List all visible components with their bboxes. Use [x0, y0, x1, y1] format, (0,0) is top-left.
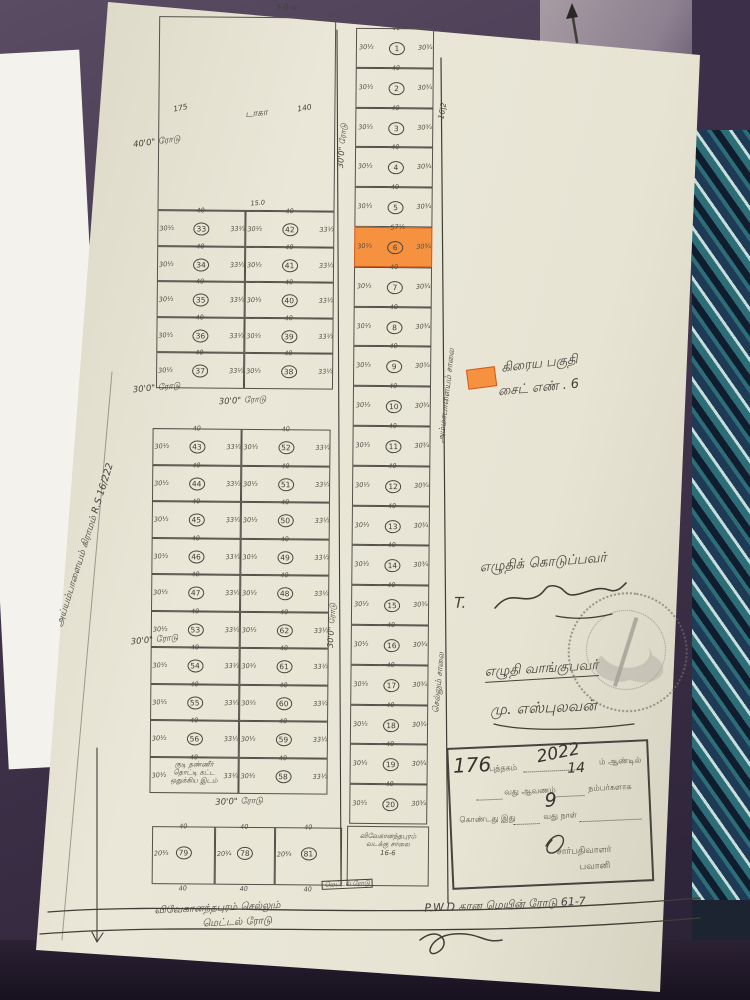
- dimension-label: 30½: [356, 362, 371, 369]
- legend-swatch: [466, 366, 497, 390]
- annotation-label: 30'0" ரோடு: [336, 123, 349, 168]
- dimension-label: 40: [278, 718, 287, 725]
- dimension-label: 30½: [359, 43, 374, 50]
- plot-number: 79: [175, 846, 191, 859]
- plot-number: 52: [278, 441, 294, 454]
- dimension-label: 40: [386, 701, 395, 708]
- dimension-label: 30½: [356, 322, 371, 329]
- plot-number: 36: [192, 329, 208, 342]
- dimension-label: 33½: [319, 297, 334, 304]
- annotation-label: அம்மாபாளையம் சாலை: [438, 348, 458, 444]
- dimension-label: 33½: [225, 553, 240, 560]
- dimension-label: 30¾: [415, 323, 430, 330]
- plot-number: 51: [278, 478, 294, 491]
- dimension-label: 40: [192, 462, 201, 469]
- dimension-label: 30½: [158, 332, 173, 339]
- dimension-label: 40: [389, 304, 398, 311]
- dimension-label: 30½: [243, 443, 258, 450]
- dimension-label: 30½: [354, 561, 369, 568]
- dimension-label: 40: [284, 350, 293, 357]
- dimension-label: 40: [386, 662, 395, 669]
- dimension-label: 40: [285, 208, 294, 215]
- plot-number: 2: [389, 82, 405, 95]
- dimension-label: 30¾: [412, 681, 427, 688]
- numbers-label: நம்பர்களாக: [588, 782, 632, 794]
- dimension-label: 40: [280, 499, 289, 506]
- dimension-label: 30½: [246, 332, 261, 339]
- dimension-label: 30¾: [411, 800, 426, 807]
- dimension-label: 30½: [357, 282, 372, 289]
- dimension-label: 30½: [153, 552, 168, 559]
- plot-number: 3: [388, 122, 404, 135]
- dimension-label: 40: [189, 717, 198, 724]
- dimension-label: 40: [389, 383, 398, 390]
- dimension-label: 30½: [355, 441, 370, 448]
- dimension-label: 40: [392, 25, 401, 32]
- plot-number: 39: [281, 330, 297, 343]
- dimension-label: 30½: [353, 720, 368, 727]
- dimension-label: 33½: [224, 699, 239, 706]
- annotation-label: 30'0" ரோடு: [219, 395, 267, 408]
- dimension-label: 40: [192, 425, 201, 432]
- dimension-label: 30½: [352, 800, 367, 807]
- dimension-label: 30½: [357, 203, 372, 210]
- grantor-initial: T.: [454, 595, 466, 612]
- plot-number: 78: [237, 847, 253, 860]
- plot-number: 49: [277, 551, 293, 564]
- plot-number: 56: [186, 732, 202, 745]
- dimension-label: 30½: [247, 297, 262, 304]
- dimension-label: 33½: [224, 662, 239, 669]
- annotation-label: 15.0: [250, 199, 265, 208]
- plot-number: 33: [193, 222, 209, 235]
- dimension-label: 40: [280, 572, 289, 579]
- plot-number: 34: [193, 258, 209, 271]
- dimension-label: 40: [389, 343, 398, 350]
- dimension-label: 30¾: [414, 482, 429, 489]
- plot-number: 61: [276, 660, 292, 673]
- day-value: 9: [544, 789, 557, 812]
- year-suffix: ம் ஆண்டில்: [599, 756, 642, 768]
- dimension-label: 30½: [159, 260, 174, 267]
- dimension-label: 33½: [318, 369, 333, 376]
- dimension-label: 30¾: [415, 402, 430, 409]
- dimension-label: 40: [190, 644, 199, 651]
- annotation-label: டாகா: [245, 108, 268, 120]
- legend-line2: சைட் எண் . 6: [497, 378, 579, 401]
- grantee-name: மு. எஸ்புலவன்: [490, 697, 597, 719]
- dimension-label: 33½: [314, 590, 329, 597]
- officer-label: சார்பதிவாளர்: [557, 845, 612, 858]
- doc-number: 176: [453, 752, 492, 778]
- dimension-label: 30½: [358, 83, 373, 90]
- dimension-label: 40: [178, 885, 187, 892]
- plot-number: 81: [300, 847, 316, 860]
- dimension-label: 30¾: [414, 442, 429, 449]
- dimension-label: 30½: [240, 772, 255, 779]
- corner-text-lines: விவேகானந்தபுரம்வடக்கு சாலை16-6: [347, 832, 429, 858]
- plot-number: 16: [384, 639, 400, 652]
- dimension-label: 40: [392, 65, 401, 72]
- dimension-label: 30½: [355, 521, 370, 528]
- plot-number: 41: [281, 259, 297, 272]
- dimension-label: 40: [280, 535, 289, 542]
- plot-number: 18: [383, 719, 399, 732]
- annotation-label: அய்யம்பாளையம் கிராமம் R.S 16/222: [55, 462, 117, 628]
- dimension-label: 33½: [315, 444, 330, 451]
- dimension-label: 40: [279, 681, 288, 688]
- dimension-label: 30½: [159, 296, 174, 303]
- plot-number: 13: [385, 520, 401, 533]
- dimension-label: 40: [281, 462, 290, 469]
- dimension-label: 20¾: [154, 850, 169, 857]
- plot-number: 59: [275, 733, 291, 746]
- dimension-label: 30½: [152, 662, 167, 669]
- dimension-label: 40: [385, 781, 394, 788]
- dimension-label: 33½: [230, 261, 245, 268]
- dimension-label: 40: [390, 264, 399, 271]
- dimension-label: 30½: [241, 735, 256, 742]
- plot-number: 11: [385, 440, 401, 453]
- dimension-label: 30½: [241, 662, 256, 669]
- dimension-label: 40: [387, 542, 396, 549]
- annotation-label: 16|2: [437, 102, 449, 120]
- plot-number: 40: [281, 294, 297, 307]
- dimension-label: 30½: [154, 479, 169, 486]
- dimension-label: 40: [279, 608, 288, 615]
- dimension-label: 40: [391, 105, 400, 112]
- dimension-label: 30½: [158, 367, 173, 374]
- dimension-label: 40: [388, 463, 397, 470]
- dimension-label: 30½: [242, 626, 257, 633]
- dimension-label: 33½: [230, 225, 245, 232]
- plot-number: 60: [276, 697, 292, 710]
- dimension-label: 40: [284, 279, 293, 286]
- dimension-label: 30½: [353, 760, 368, 767]
- dimension-label: 33½: [319, 226, 334, 233]
- dimension-label: 40: [391, 184, 400, 191]
- dimension-label: 40: [386, 741, 395, 748]
- plot-number: 53: [187, 623, 203, 636]
- photo-of-survey-document: கிரைய பகுதி சைட் எண் . 6 எழுதிக் கொடுப்ப…: [0, 0, 750, 1000]
- dimension-label: 40: [285, 244, 294, 251]
- dimension-label: 20¾: [217, 850, 232, 857]
- dotted-leader: [476, 791, 502, 801]
- dimension-label: 40: [240, 824, 249, 831]
- dimension-label: 30½: [357, 242, 372, 249]
- dimension-label: 30½: [243, 516, 258, 523]
- dimension-label: 40: [303, 886, 312, 893]
- dimension-label: 40: [191, 571, 200, 578]
- dimension-label: 30¾: [413, 561, 428, 568]
- dimension-label: 40: [196, 278, 205, 285]
- annotation-label: விவேகானந்தபுரம் செல்லும்: [154, 900, 280, 917]
- dimension-label: 30½: [354, 601, 369, 608]
- dimension-label: 40: [388, 423, 397, 430]
- dimension-label: 33½: [230, 297, 245, 304]
- dimension-label: 33½: [229, 332, 244, 339]
- dimension-label: 40: [190, 608, 199, 615]
- survey-plan-drawing: கிரைய பகுதி சைட் எண் . 6 எழுதிக் கொடுப்ப…: [0, 0, 750, 1000]
- metal-road-box: மெட்டல் ரோடு: [321, 879, 373, 891]
- dimension-label: 33½: [226, 516, 241, 523]
- annotation-label: 5-0 வ: [276, 3, 298, 13]
- dimension-label: 30¾: [415, 362, 430, 369]
- dimension-label: 40: [279, 645, 288, 652]
- dimension-label: 40: [178, 823, 187, 830]
- plot-number: 47: [188, 586, 204, 599]
- dimension-label: 40: [387, 622, 396, 629]
- plot-number: 50: [277, 514, 293, 527]
- dimension-label: 33½: [225, 626, 240, 633]
- plot-number: 6: [387, 241, 403, 254]
- dimension-label: 30¾: [412, 721, 427, 728]
- dimension-label: 30½: [154, 443, 169, 450]
- plot-number: 12: [385, 480, 401, 493]
- dimension-label: 30½: [356, 402, 371, 409]
- plot-number: 1: [389, 42, 405, 55]
- dimension-label: 30½: [152, 698, 167, 705]
- dimension-label: 30¾: [416, 283, 431, 290]
- dimension-label: 40: [196, 243, 205, 250]
- dimension-label: 40: [387, 582, 396, 589]
- dimension-label: 40: [196, 207, 205, 214]
- dimension-label: 30¾: [413, 601, 428, 608]
- dimension-label: 30¾: [417, 163, 432, 170]
- plot-number: 42: [282, 223, 298, 236]
- dimension-label: 30½: [159, 225, 174, 232]
- dotted-leader: [513, 815, 539, 825]
- book-label: புத்தகம்: [489, 763, 517, 774]
- dimension-label: 30¾: [414, 522, 429, 529]
- dimension-label: 33½: [319, 262, 334, 269]
- dimension-label: 30½: [153, 625, 168, 632]
- plot-number: 62: [276, 624, 292, 637]
- line3-suffix: வது நாள்: [543, 810, 577, 821]
- plot-number: 8: [386, 321, 402, 334]
- dimension-label: 30¾: [413, 641, 428, 648]
- dimension-label: 33½: [315, 481, 330, 488]
- grantor-label: எழுதிக் கொடுப்பவர்: [479, 551, 607, 576]
- reserved-area-text: குடி தண்ணீர்தொட்டி கட்டஒதுக்கிய இடம்: [150, 760, 239, 786]
- plot-number: 44: [189, 477, 205, 490]
- dimension-label: 30½: [246, 368, 261, 375]
- plot-number: 48: [277, 587, 293, 600]
- dimension-label: 40: [388, 502, 397, 509]
- dimension-label: 33½: [226, 480, 241, 487]
- dimension-label: 30½: [358, 163, 373, 170]
- dimension-label: 20¾: [277, 851, 292, 858]
- dimension-label: 30½: [242, 553, 257, 560]
- dimension-label: 33½: [313, 663, 328, 670]
- plot-number: 45: [188, 513, 204, 526]
- office-name: பவானி: [579, 861, 610, 873]
- dimension-label: 33½: [318, 333, 333, 340]
- annotation-label: 30'0" ரோடு: [326, 603, 338, 648]
- dimension-label: 33½: [312, 773, 327, 780]
- annotation-label: செல்லும் சாலை: [432, 652, 448, 714]
- dimension-label: 40: [391, 144, 400, 151]
- dimension-label: 30½: [153, 589, 168, 596]
- dimension-label: 30½: [152, 735, 167, 742]
- dimension-label: 30¾: [416, 243, 431, 250]
- registration-box: 176 புத்தகம் 2022 14 ம் ஆண்டில் வது ஆவணம…: [446, 739, 654, 890]
- dimension-label: 30½: [242, 589, 257, 596]
- dimension-label: 30¾: [417, 84, 432, 91]
- dimension-label: 40: [284, 315, 293, 322]
- year-sub-value: 14: [567, 760, 586, 777]
- plot-number: 17: [383, 679, 399, 692]
- dimension-label: 33½: [225, 589, 240, 596]
- dimension-label: 30½: [355, 481, 370, 488]
- dimension-label: 33½: [315, 517, 330, 524]
- dimension-label: 40: [281, 426, 290, 433]
- dimension-label: 40: [191, 535, 200, 542]
- dimension-label: 40: [195, 350, 204, 357]
- dimension-label: 57½: [390, 224, 405, 231]
- dimension-label: 30½: [247, 261, 262, 268]
- dimension-label: 40: [190, 681, 199, 688]
- dimension-label: 30½: [247, 226, 262, 233]
- plot-number: 7: [387, 281, 403, 294]
- dimension-label: 30¾: [412, 760, 427, 767]
- legend-line1: கிரைய பகுதி: [501, 353, 579, 377]
- line3-prefix: கொண்டது இது: [459, 813, 516, 825]
- dimension-label: 30½: [243, 480, 258, 487]
- dotted-leader: [554, 787, 584, 797]
- dimension-label: 30½: [354, 640, 369, 647]
- dimension-label: 33½: [224, 735, 239, 742]
- dimension-label: 40: [239, 886, 248, 893]
- annotation-label: P.W.D கான மெயின் ரோடு 61-7: [424, 896, 586, 916]
- dimension-label: 30¾: [416, 203, 431, 210]
- dimension-label: 33½: [314, 554, 329, 561]
- annotation-label: 30'0" ரோடு: [215, 797, 263, 809]
- plot-number: 54: [187, 659, 203, 672]
- dimension-label: 30¾: [417, 124, 432, 131]
- dimension-label: 30½: [154, 516, 169, 523]
- dotted-leader: [579, 811, 641, 823]
- dimension-label: 40: [303, 824, 312, 831]
- dimension-label: 33½: [229, 368, 244, 375]
- annotation-label: மெட்டல் ரோடு: [202, 915, 272, 930]
- plot-number: 58: [275, 770, 291, 783]
- dimension-label: 33½: [313, 700, 328, 707]
- annotation-label: 30'0" ரோடு: [133, 382, 181, 396]
- dimension-label: 30½: [358, 123, 373, 130]
- dimension-label: 40: [195, 314, 204, 321]
- dimension-label: 33½: [226, 443, 241, 450]
- dimension-label: 30½: [353, 680, 368, 687]
- dimension-label: 40: [278, 754, 287, 761]
- dimension-label: 30½: [241, 699, 256, 706]
- plot-number: 55: [187, 696, 203, 709]
- plot-number: 43: [189, 440, 205, 453]
- dimension-label: 30¾: [418, 44, 433, 51]
- dimension-label: 40: [191, 498, 200, 505]
- dimension-label: 33½: [313, 736, 328, 743]
- plot-number: 46: [188, 550, 204, 563]
